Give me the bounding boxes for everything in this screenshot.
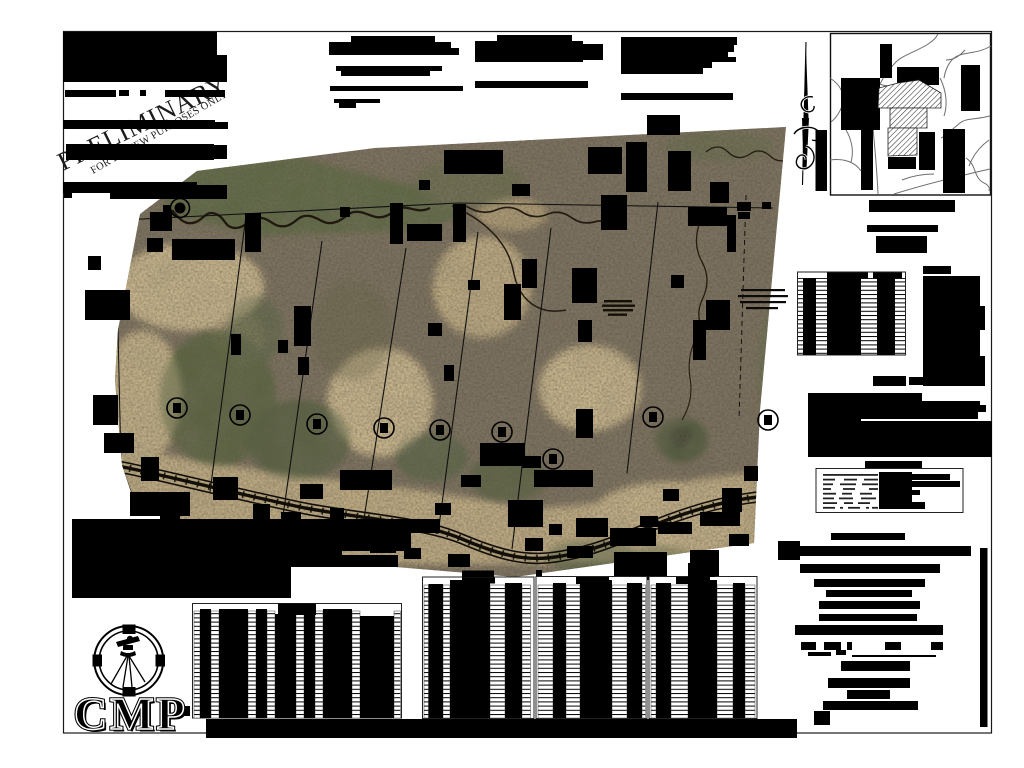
- svg-text:CMP: CMP: [74, 688, 188, 739]
